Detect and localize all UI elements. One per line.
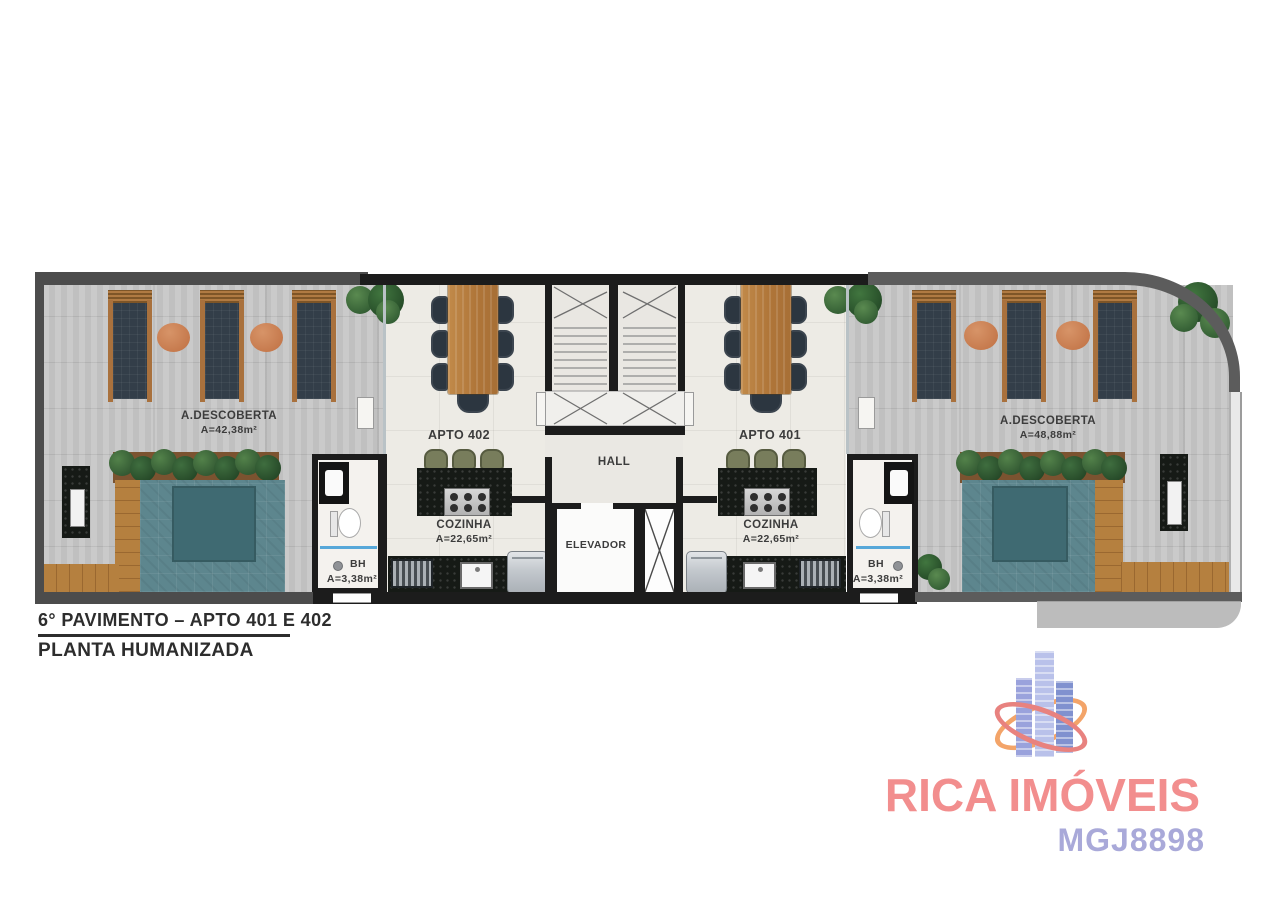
wall [511, 496, 546, 503]
deck-right-label: A.DESCOBERTA [1000, 415, 1096, 427]
bathroom-right-area: A=3,38m² [853, 573, 903, 585]
fridge [686, 551, 727, 594]
plant [346, 282, 410, 328]
shaft-cross-icon [645, 509, 674, 592]
hall-label: HALL [598, 456, 630, 468]
landing-ledge [536, 392, 546, 426]
exterior-wall-top-center [360, 274, 877, 285]
caption-line1: 6° PAVIMENTO – APTO 401 E 402 [38, 610, 332, 631]
dining-table [448, 284, 498, 394]
door-threshold [860, 593, 898, 603]
cooktop [444, 488, 490, 516]
dining-chair [497, 363, 514, 391]
toilet [858, 508, 890, 538]
exterior-wall-top-left [35, 272, 368, 285]
exterior-railing-right [1229, 392, 1242, 592]
floor-drain [333, 561, 343, 571]
grill-appliance [391, 559, 433, 588]
kitchen-402-label: COZINHA [436, 519, 491, 531]
bathroom-right-label: BH [868, 558, 884, 570]
exterior-wall-bottom-left [35, 592, 315, 604]
bathroom-sink [884, 462, 914, 504]
pool-wood-deck [43, 564, 119, 592]
elevator-label: ELEVADOR [566, 539, 627, 551]
hedge-planter [113, 452, 279, 483]
dining-chair [724, 330, 741, 358]
grill-appliance [799, 559, 841, 588]
apto-401-label: APTO 401 [739, 428, 801, 442]
side-table [964, 321, 998, 350]
dining-chair [497, 296, 514, 324]
elevator-door [581, 503, 613, 509]
lounge-cushion [113, 303, 147, 399]
bar-stool [726, 449, 750, 470]
bar-stool [480, 449, 504, 470]
lounge-chair [200, 290, 244, 402]
lounge-chair [108, 290, 152, 402]
dining-table [741, 284, 791, 394]
outdoor-counter-sink [1167, 481, 1182, 525]
dining-chair [790, 363, 807, 391]
deck-right-area: A=48,88m² [1020, 429, 1076, 441]
cooktop [744, 488, 790, 516]
side-table [250, 323, 283, 352]
planter-box [858, 397, 875, 429]
dining-chair [750, 391, 782, 413]
caption-line2: PLANTA HUMANIZADA [38, 640, 254, 662]
pool [140, 480, 285, 592]
toilet [330, 508, 362, 538]
outdoor-counter-sink [70, 489, 85, 527]
bar-stool [452, 449, 476, 470]
plant [824, 282, 888, 328]
floor-drain [893, 561, 903, 571]
kitchen-402-area: A=22,65m² [436, 533, 492, 545]
glass-wall [383, 285, 386, 454]
dining-chair [790, 296, 807, 324]
lower-floor-terrace [1037, 601, 1241, 628]
glass-wall [846, 285, 849, 454]
kitchen-sink [743, 562, 776, 589]
hedge-planter [960, 452, 1125, 483]
landing-ledge [684, 392, 694, 426]
dining-chair [790, 330, 807, 358]
shower-line [856, 546, 910, 549]
exterior-wall-top-right [868, 272, 1120, 285]
wall [545, 457, 552, 503]
lounge-chair [912, 290, 956, 402]
pool-wood-deck [1121, 562, 1233, 592]
exterior-wall-left [35, 272, 44, 603]
watermark-code: MGJ8898 [872, 822, 1205, 859]
deck-left-area: A=42,38m² [201, 424, 257, 436]
kitchen-401-area: A=22,65m² [743, 533, 799, 545]
bar-stool [782, 449, 806, 470]
pool-deep-area [992, 486, 1068, 562]
planter-box [357, 397, 374, 429]
kitchen-401-label: COZINHA [743, 519, 798, 531]
plant [914, 552, 954, 594]
bathroom-left-area: A=3,38m² [327, 573, 377, 585]
apto-402-label: APTO 402 [428, 428, 490, 442]
lounge-chair [292, 290, 336, 402]
bathroom-left-label: BH [350, 558, 366, 570]
dining-chair [431, 296, 448, 324]
watermark-brand: RICA IMÓVEIS [870, 768, 1215, 822]
pool-wood-deck [1095, 480, 1123, 592]
hall-floor [545, 433, 683, 503]
caption-divider [38, 634, 290, 637]
pool [962, 480, 1095, 592]
exterior-wall-bottom-center [313, 592, 917, 604]
bar-stool [754, 449, 778, 470]
shower-line [320, 546, 377, 549]
bathroom-sink [319, 462, 349, 504]
side-table [1056, 321, 1090, 350]
dining-chair [724, 296, 741, 324]
staircase [545, 278, 685, 435]
brand-logo-icon [990, 648, 1100, 763]
dining-chair [431, 330, 448, 358]
deck-left-label: A.DESCOBERTA [181, 410, 277, 422]
bar-stool [424, 449, 448, 470]
kitchen-sink [460, 562, 493, 589]
dining-chair [497, 330, 514, 358]
wall [682, 496, 717, 503]
door-threshold [333, 593, 371, 603]
fridge [507, 551, 548, 594]
floorplan-canvas: A.DESCOBERTA A=42,38m² A.DESCOBERTA A=4 [0, 0, 1280, 904]
dining-chair [457, 391, 489, 413]
dining-chair [724, 363, 741, 391]
pool-deep-area [172, 486, 256, 562]
side-table [157, 323, 190, 352]
dining-chair [431, 363, 448, 391]
lounge-chair [1002, 290, 1046, 402]
